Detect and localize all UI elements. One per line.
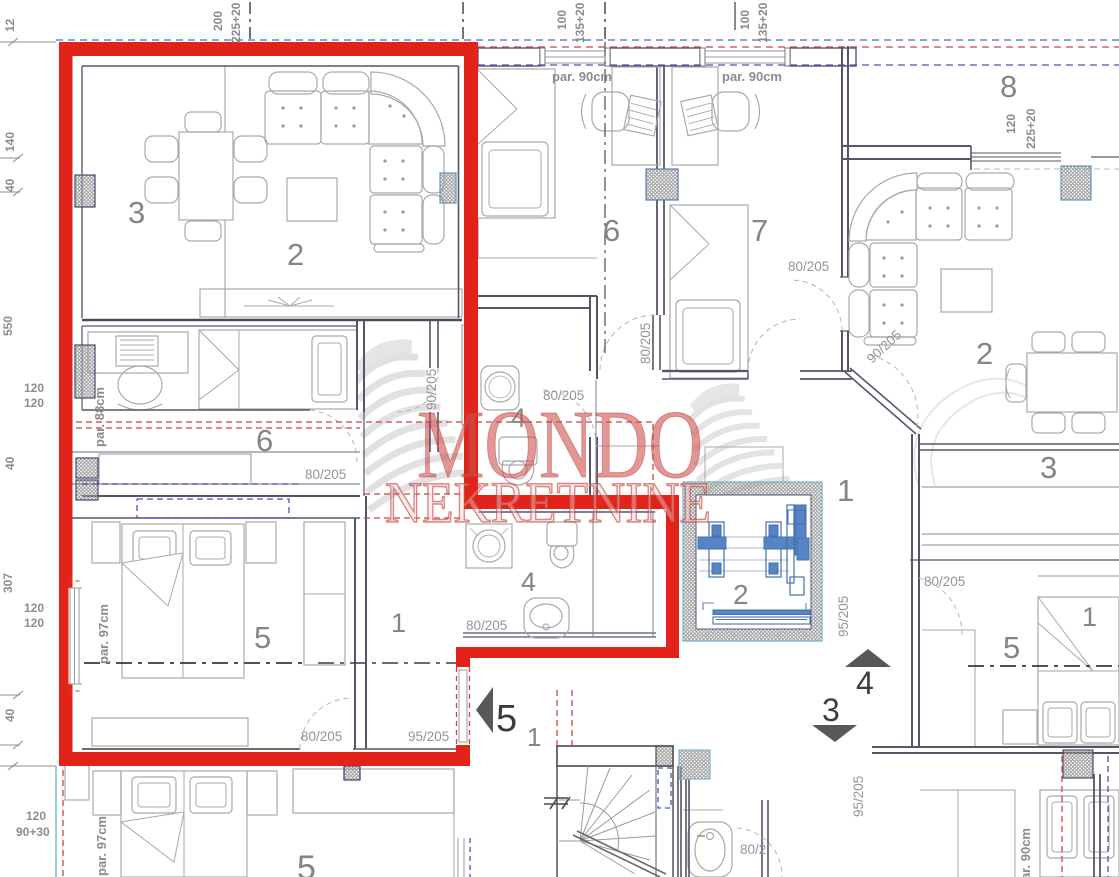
- svg-text:2: 2: [733, 579, 749, 610]
- svg-text:3: 3: [1040, 450, 1057, 485]
- svg-text:par. 97cm: par. 97cm: [96, 604, 111, 664]
- svg-text:100: 100: [738, 10, 752, 30]
- svg-text:6: 6: [256, 423, 273, 458]
- svg-text:135+20: 135+20: [573, 2, 587, 43]
- svg-text:225+20: 225+20: [1024, 108, 1038, 149]
- svg-text:par. 88cm: par. 88cm: [92, 387, 107, 447]
- svg-text:80/205: 80/205: [924, 574, 965, 589]
- svg-text:120: 120: [24, 381, 44, 395]
- svg-text:12: 12: [3, 18, 17, 32]
- svg-text:8: 8: [1000, 69, 1017, 104]
- svg-text:7: 7: [751, 213, 768, 248]
- svg-text:5: 5: [496, 698, 517, 740]
- svg-text:95/205: 95/205: [408, 729, 449, 744]
- svg-text:5: 5: [254, 620, 271, 655]
- svg-text:par. 97cm: par. 97cm: [94, 816, 109, 876]
- svg-text:80/205: 80/205: [466, 618, 507, 633]
- svg-text:2: 2: [976, 336, 993, 371]
- svg-text:95/205: 95/205: [851, 776, 866, 817]
- svg-text:120: 120: [24, 396, 44, 410]
- svg-text:307: 307: [1, 573, 15, 593]
- svg-text:120: 120: [24, 616, 44, 630]
- svg-text:1: 1: [391, 608, 406, 638]
- svg-text:3: 3: [822, 692, 840, 728]
- svg-text:80/2: 80/2: [740, 842, 766, 857]
- svg-text:120: 120: [24, 601, 44, 615]
- svg-text:140: 140: [3, 132, 17, 152]
- svg-text:3: 3: [128, 195, 145, 230]
- svg-text:80/205: 80/205: [305, 467, 346, 482]
- svg-text:120: 120: [1004, 114, 1018, 134]
- svg-text:5: 5: [1003, 630, 1020, 665]
- svg-text:80/205: 80/205: [638, 323, 653, 364]
- svg-text:80/205: 80/205: [301, 729, 342, 744]
- svg-text:40: 40: [3, 178, 17, 192]
- svg-text:6: 6: [603, 213, 620, 248]
- svg-text:135+20: 135+20: [756, 2, 770, 43]
- svg-text:par. 90cm: par. 90cm: [722, 69, 782, 84]
- svg-text:5: 5: [297, 849, 316, 877]
- svg-text:40: 40: [3, 456, 17, 470]
- svg-text:1: 1: [1082, 602, 1097, 632]
- svg-text:40: 40: [3, 708, 17, 722]
- svg-text:95/205: 95/205: [836, 596, 851, 637]
- svg-text:4: 4: [521, 567, 536, 597]
- svg-text:225+20: 225+20: [229, 2, 243, 43]
- svg-text:1: 1: [527, 722, 541, 752]
- svg-text:550: 550: [1, 316, 15, 336]
- svg-text:90+30: 90+30: [16, 825, 50, 839]
- svg-text:100: 100: [555, 10, 569, 30]
- svg-text:120: 120: [26, 809, 46, 823]
- svg-text:par. 90cm: par. 90cm: [1018, 828, 1033, 877]
- svg-text:NEKRETNINE: NEKRETNINE: [385, 470, 711, 535]
- svg-text:1: 1: [837, 473, 854, 508]
- svg-text:par. 90cm: par. 90cm: [552, 69, 612, 84]
- svg-text:80/205: 80/205: [788, 259, 829, 274]
- svg-text:4: 4: [856, 665, 874, 701]
- svg-text:200: 200: [211, 11, 225, 31]
- svg-text:2: 2: [287, 237, 304, 272]
